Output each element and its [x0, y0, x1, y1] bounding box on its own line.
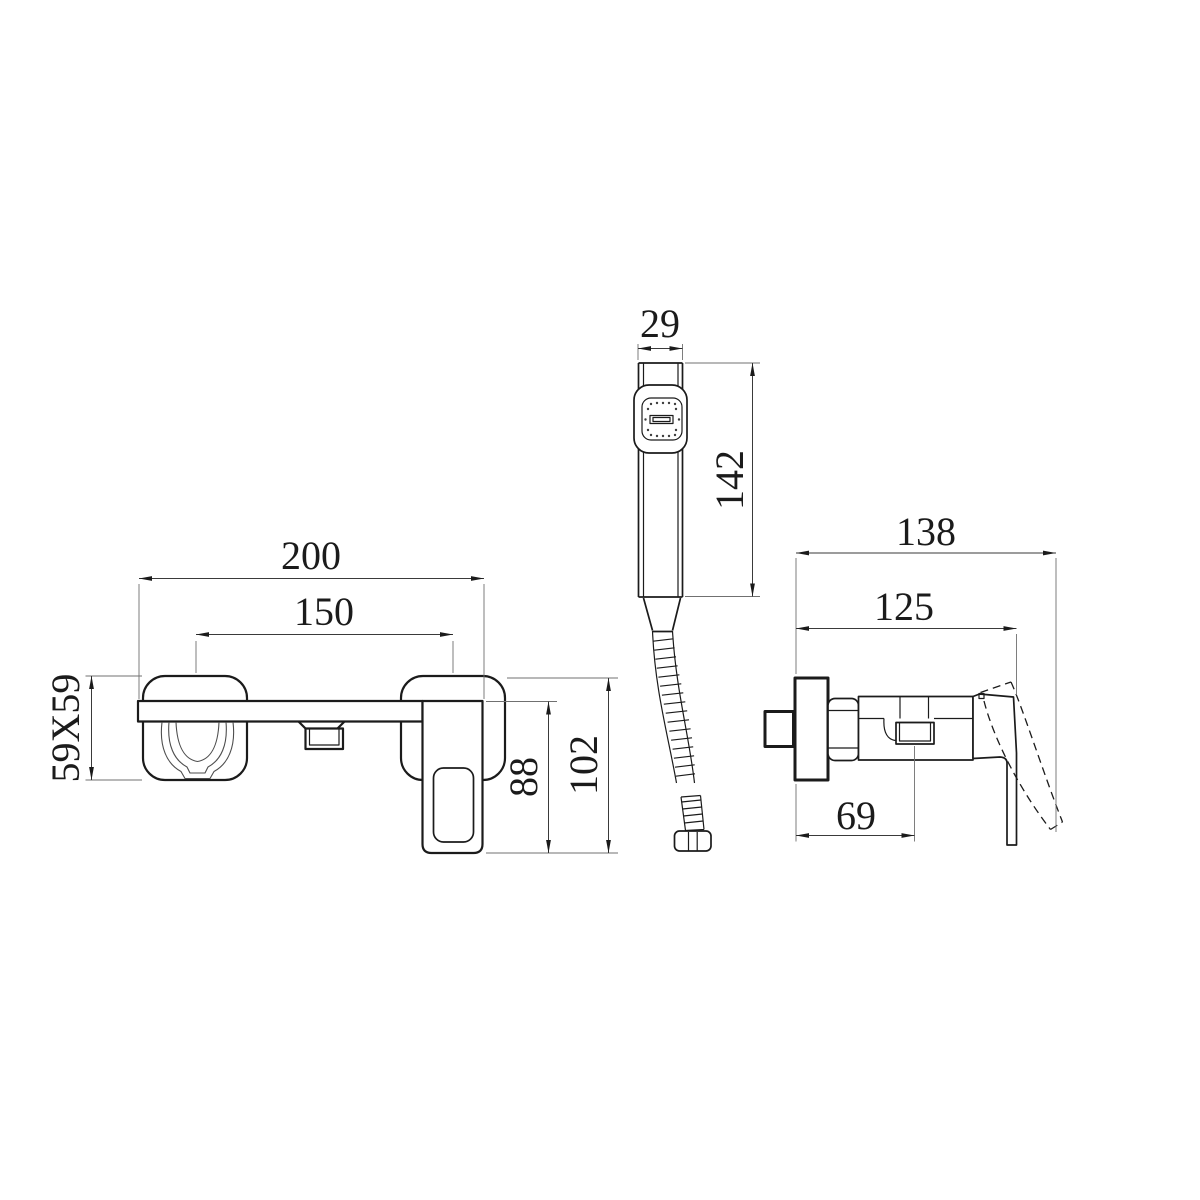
dim-label-faucet-centers: 150	[294, 589, 354, 634]
hose-cone	[644, 598, 681, 632]
escutcheon-left	[143, 676, 247, 780]
dim-label-overall-depth: 138	[896, 509, 956, 554]
hose-end-fitting	[675, 796, 712, 852]
dim-label-outlet-offset: 69	[836, 793, 876, 838]
dim-label-handle-length: 142	[707, 450, 752, 510]
front-view: 200 150 59X59 88 102	[43, 533, 618, 853]
escutcheon-side	[795, 678, 828, 780]
mixer-handle-side	[973, 694, 1017, 846]
handle-cutout	[434, 768, 474, 842]
front-dimensions: 200 150 59X59 88 102	[43, 533, 618, 853]
side-view: 138 125 69	[765, 509, 1063, 845]
eccentric-nut	[828, 699, 859, 761]
mixer-bar	[138, 701, 423, 722]
mixer-handle-front	[423, 701, 483, 853]
mixer-body-side	[859, 697, 974, 761]
dim-label-total-height: 102	[561, 735, 606, 795]
dim-label-escutcheon-size: 59X59	[43, 674, 88, 783]
hand-shower-view: 29 142	[634, 301, 760, 851]
dim-label-overall-width: 200	[281, 533, 341, 578]
dim-label-handle-height: 88	[501, 757, 546, 797]
shower-hose	[653, 631, 712, 851]
dim-label-head-width: 29	[640, 301, 680, 346]
dim-label-handle-depth: 125	[874, 584, 934, 629]
hose-nut	[675, 831, 712, 851]
supply-stub	[765, 712, 794, 747]
hose-ribs	[653, 639, 695, 776]
technical-drawing: 200 150 59X59 88 102	[0, 0, 1200, 1200]
spray-face-plate	[634, 385, 687, 453]
outlet-spout	[299, 722, 345, 750]
